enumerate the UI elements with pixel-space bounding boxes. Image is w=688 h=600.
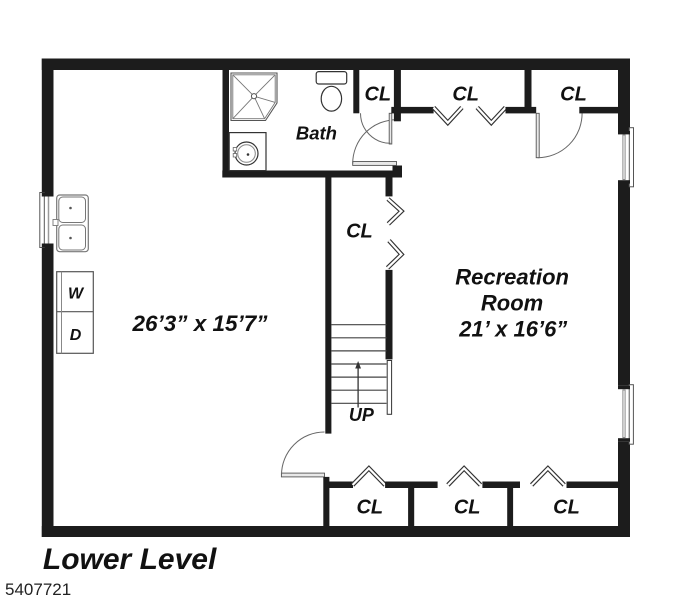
svg-text:CL: CL: [452, 84, 479, 106]
svg-text:CL: CL: [356, 497, 383, 519]
svg-text:21’ x 16’6”: 21’ x 16’6”: [458, 317, 567, 342]
svg-text:5407721: 5407721: [5, 580, 71, 599]
svg-text:Room: Room: [481, 291, 543, 316]
svg-text:UP: UP: [349, 405, 375, 425]
svg-text:CL: CL: [560, 84, 587, 106]
svg-text:Recreation: Recreation: [455, 265, 569, 290]
svg-text:W: W: [68, 285, 85, 302]
svg-text:Lower Level: Lower Level: [43, 543, 217, 576]
svg-text:D: D: [70, 327, 82, 344]
svg-text:CL: CL: [553, 497, 580, 519]
svg-text:Bath: Bath: [296, 122, 337, 143]
svg-text:CL: CL: [346, 221, 373, 243]
svg-text:26’3” x 15’7”: 26’3” x 15’7”: [131, 311, 268, 336]
svg-text:CL: CL: [364, 84, 391, 106]
svg-text:CL: CL: [454, 497, 481, 519]
